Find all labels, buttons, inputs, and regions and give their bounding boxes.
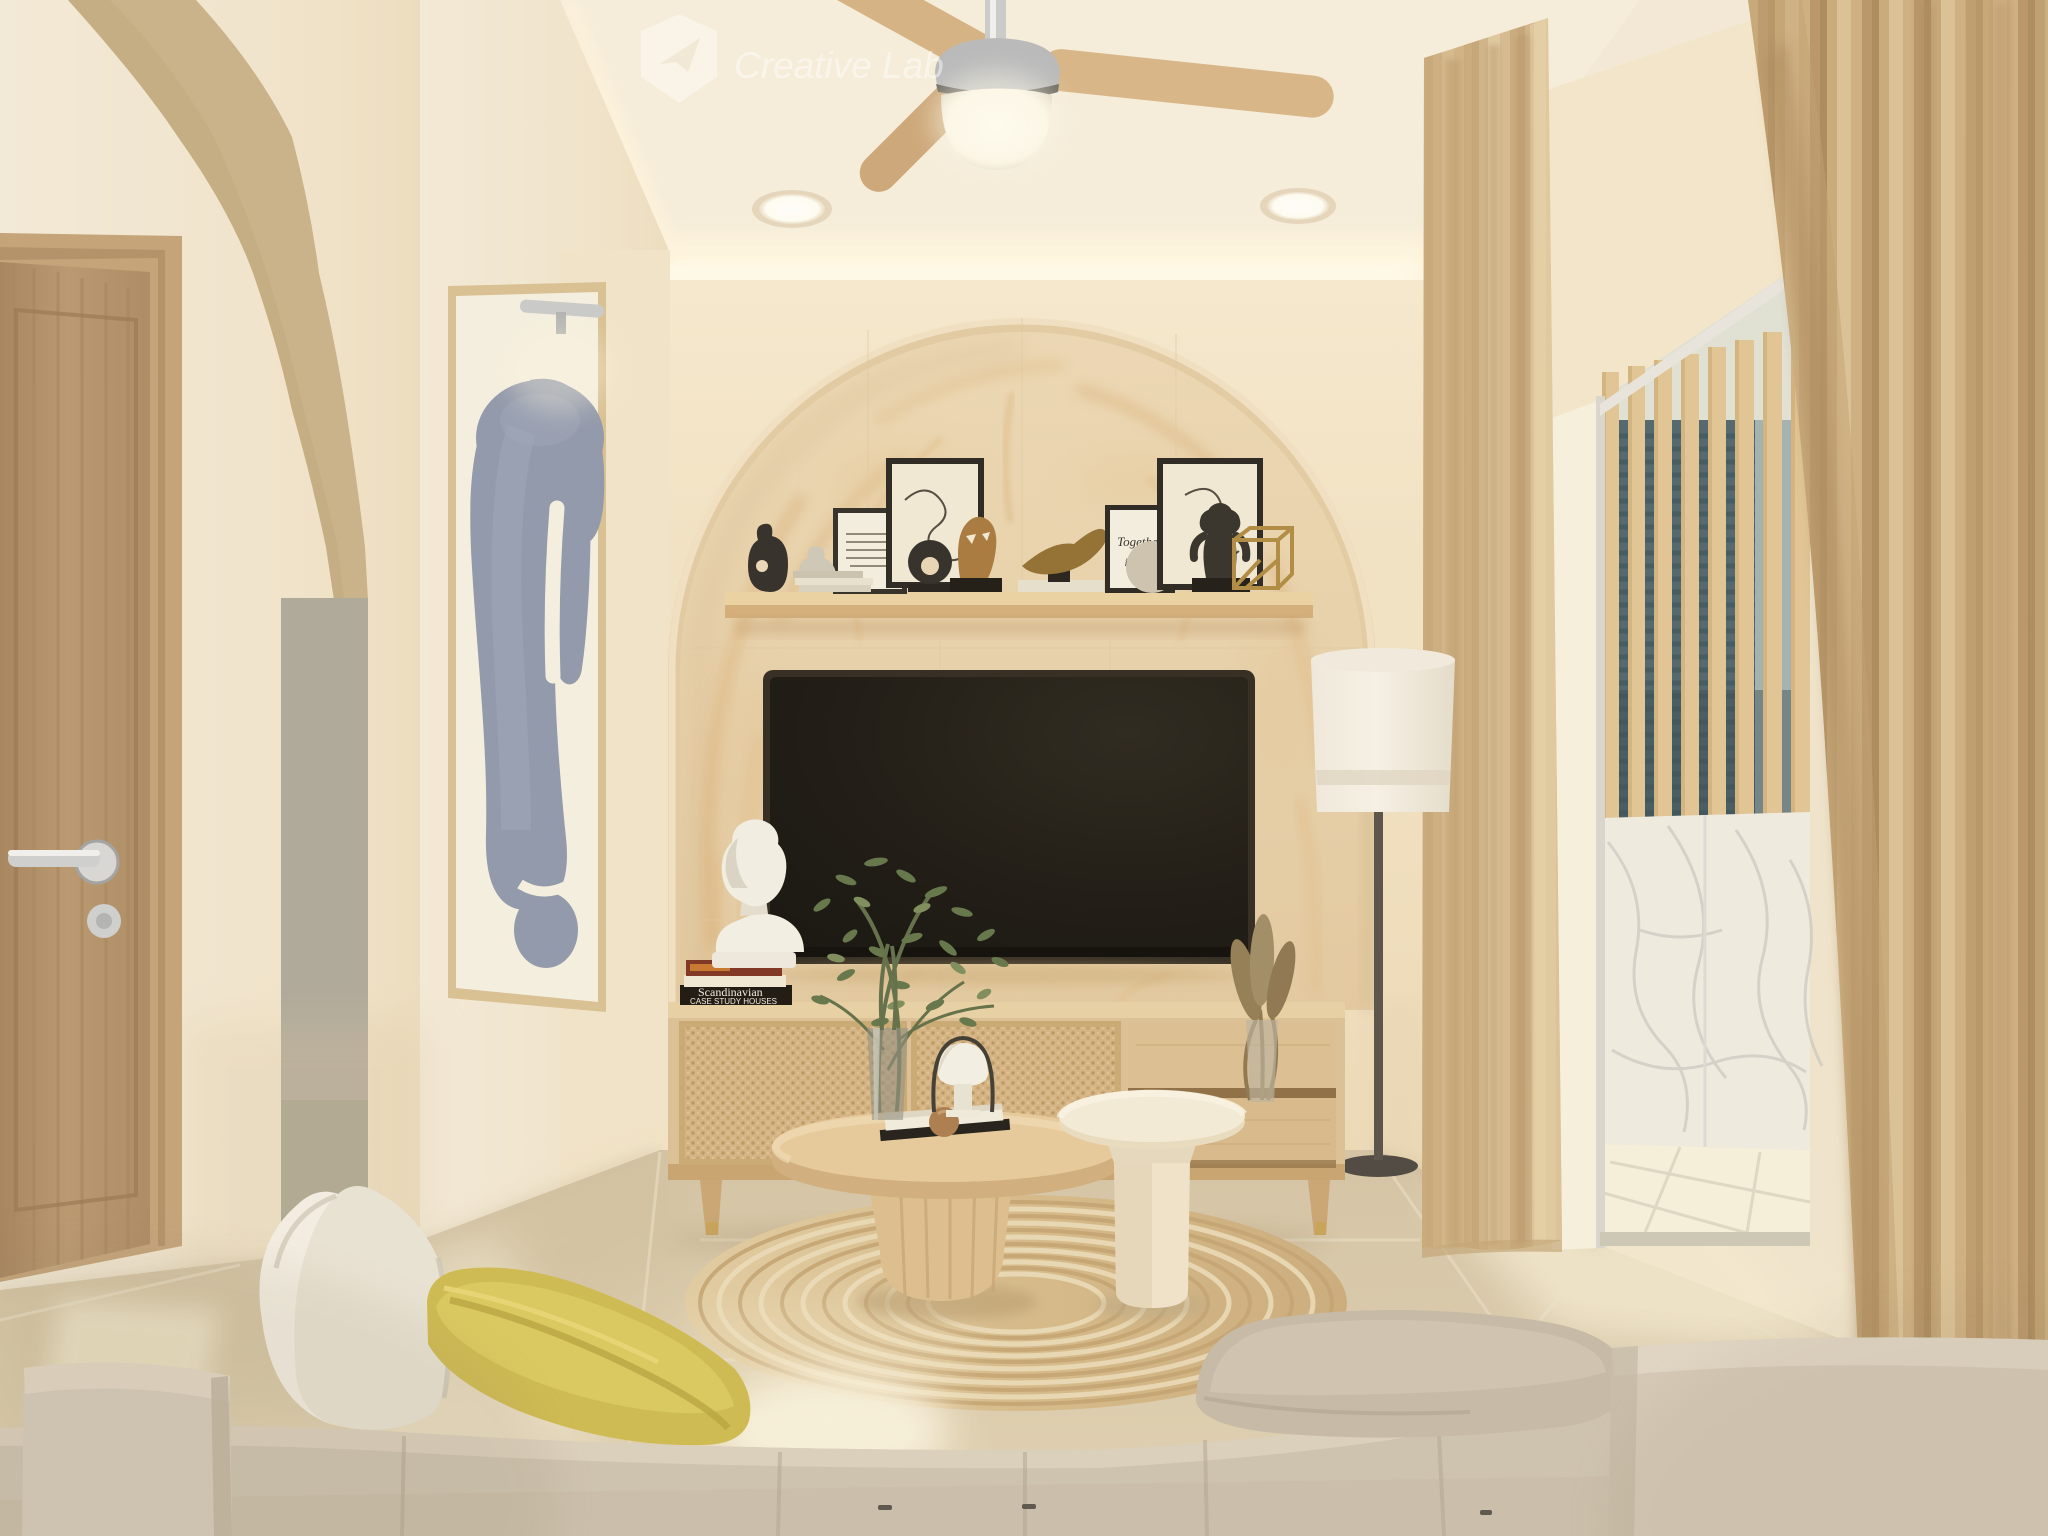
svg-text:Creative Lab: Creative Lab: [734, 45, 944, 86]
